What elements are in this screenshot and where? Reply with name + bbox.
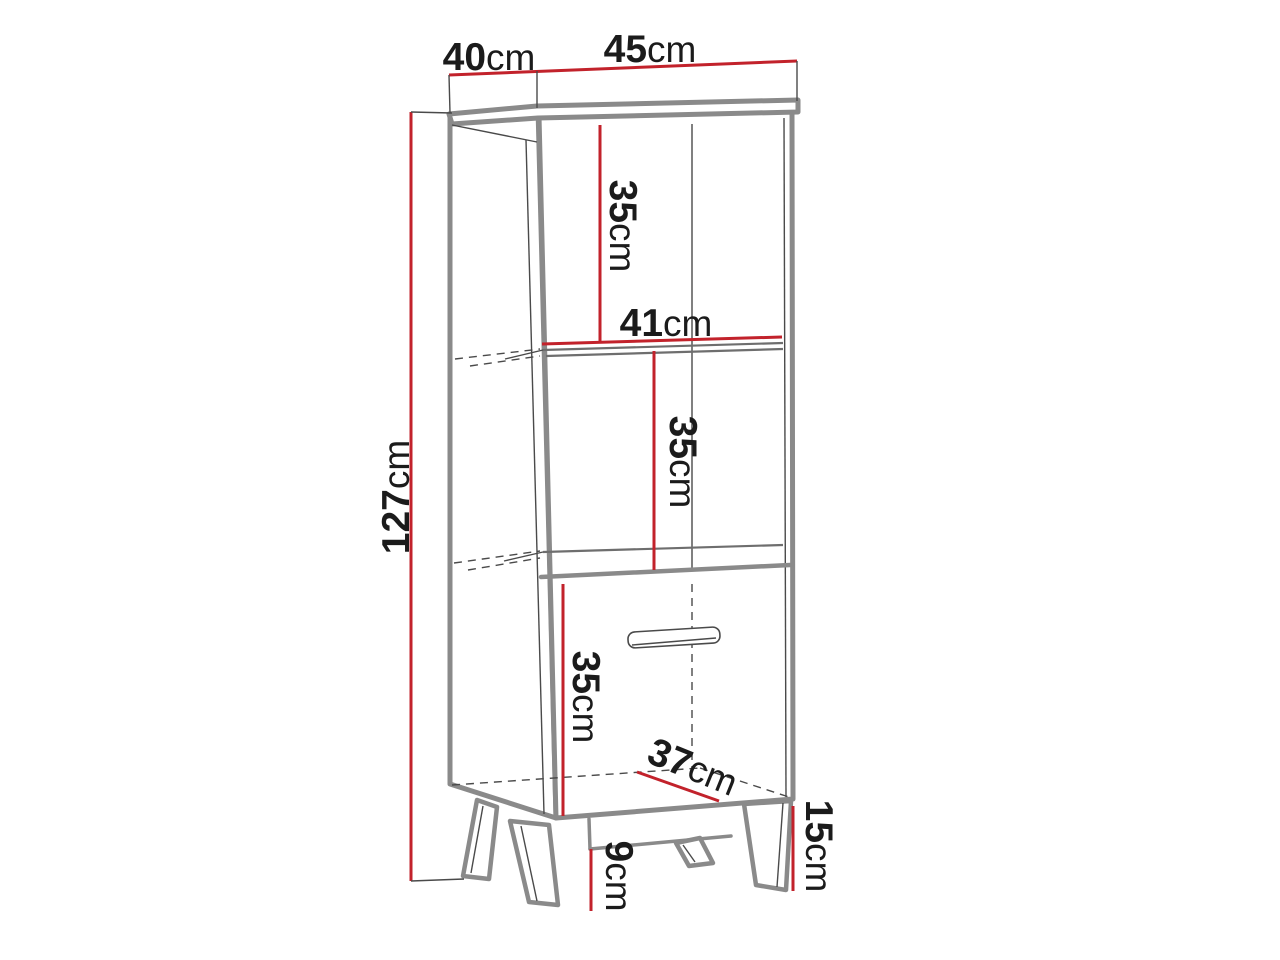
dim-label-top-width: 45cm	[604, 28, 697, 71]
extension-height-bottom	[411, 879, 464, 881]
front-left-leg	[510, 821, 558, 905]
dim-label-middle-shelf-height: 35cm	[661, 416, 704, 509]
apron-left-edge	[589, 819, 590, 849]
dim-label-leg-height: 15cm	[797, 800, 840, 893]
dim-label-shelf-width: 41cm	[620, 302, 713, 345]
cabinet-dimension-diagram: 40cm 45cm 127cm 35cm 41cm 35cm 35cm 37cm…	[0, 0, 1280, 960]
tick-top-left	[449, 75, 450, 113]
back-left-leg	[463, 800, 497, 879]
dim-label-top-depth: 40cm	[443, 36, 536, 79]
dim-label-door-section-height: 35cm	[564, 651, 607, 744]
dim-label-upper-shelf-height: 35cm	[601, 180, 644, 273]
dim-label-leg-clearance: 9cm	[597, 840, 640, 911]
front-right-leg	[744, 801, 791, 890]
diagram-canvas: 40cm 45cm 127cm 35cm 41cm 35cm 35cm 37cm…	[0, 0, 1280, 960]
dim-label-total-height: 127cm	[375, 440, 418, 554]
extension-height-top	[411, 112, 452, 113]
